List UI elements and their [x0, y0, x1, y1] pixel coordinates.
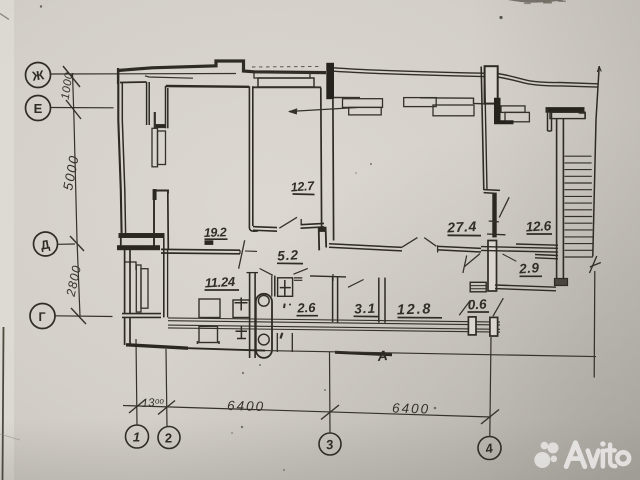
svg-text:2.9: 2.9 [518, 260, 540, 276]
svg-text:6400: 6400 [227, 398, 265, 414]
svg-text:2.6: 2.6 [296, 300, 316, 316]
svg-text:Ж: Ж [30, 67, 45, 84]
svg-text:2: 2 [165, 431, 172, 446]
svg-text:13: 13 [141, 397, 155, 410]
svg-text:6400: 6400 [392, 401, 430, 417]
svg-text:5.2: 5.2 [277, 247, 300, 263]
svg-text:Е: Е [34, 101, 43, 116]
svg-text:1: 1 [133, 430, 140, 445]
svg-text:Г: Г [38, 310, 45, 324]
svg-text:27.4: 27.4 [446, 218, 477, 236]
svg-text:0.6: 0.6 [467, 297, 487, 313]
svg-text:3.1: 3.1 [354, 301, 376, 317]
svg-text:A: A [376, 347, 389, 364]
svg-text:12.7: 12.7 [290, 179, 315, 195]
svg-text:12.6: 12.6 [525, 218, 552, 234]
svg-text:12.8: 12.8 [397, 301, 433, 318]
svg-text:oo: oo [155, 397, 164, 406]
svg-text:11.24: 11.24 [204, 274, 236, 291]
svg-text:19.2: 19.2 [204, 225, 227, 240]
